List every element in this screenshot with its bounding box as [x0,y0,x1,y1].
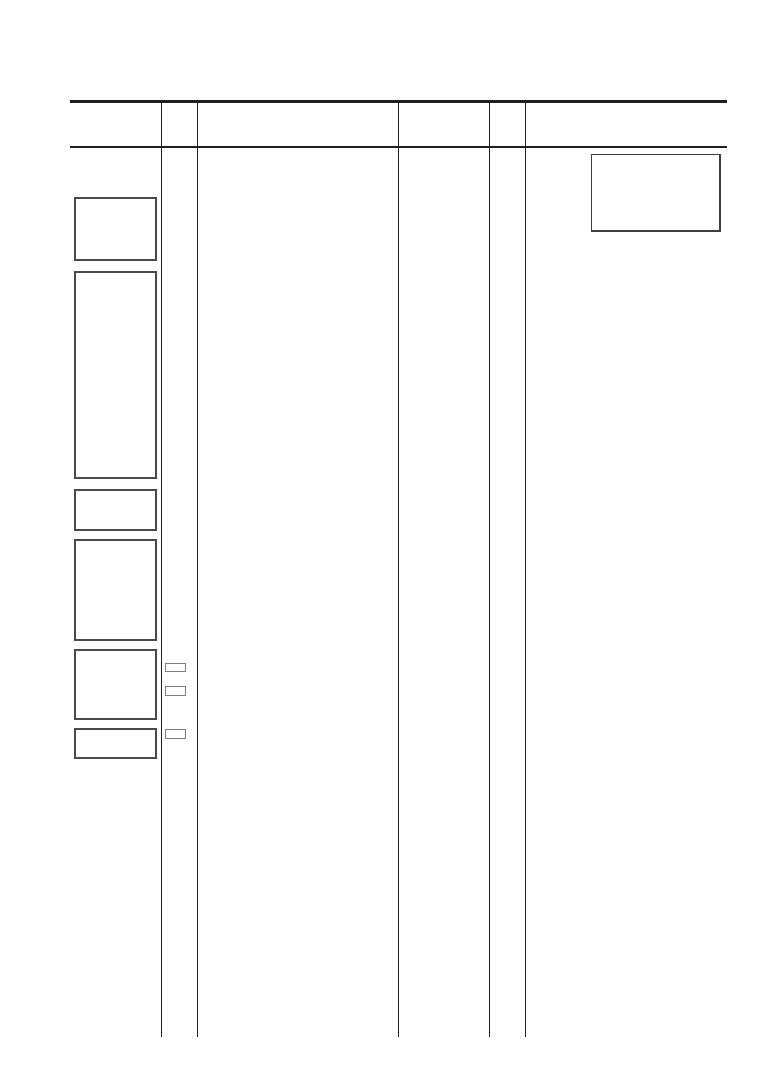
column-divider-5 [525,101,526,1037]
left-field-box-1 [74,197,157,261]
column-divider-2 [197,101,198,1037]
left-field-box-3 [74,489,157,531]
left-field-box-6 [74,728,157,759]
checkbox-2 [165,686,186,696]
left-field-box-4 [74,539,157,641]
document-page [0,0,761,1076]
column-divider-3 [398,101,399,1037]
header-note-box [591,154,721,232]
left-field-box-5 [74,649,157,720]
column-divider-1 [161,101,162,1037]
column-divider-4 [489,101,490,1037]
left-field-box-2 [74,271,157,479]
checkbox-1 [165,663,186,672]
checkbox-3 [165,729,186,739]
